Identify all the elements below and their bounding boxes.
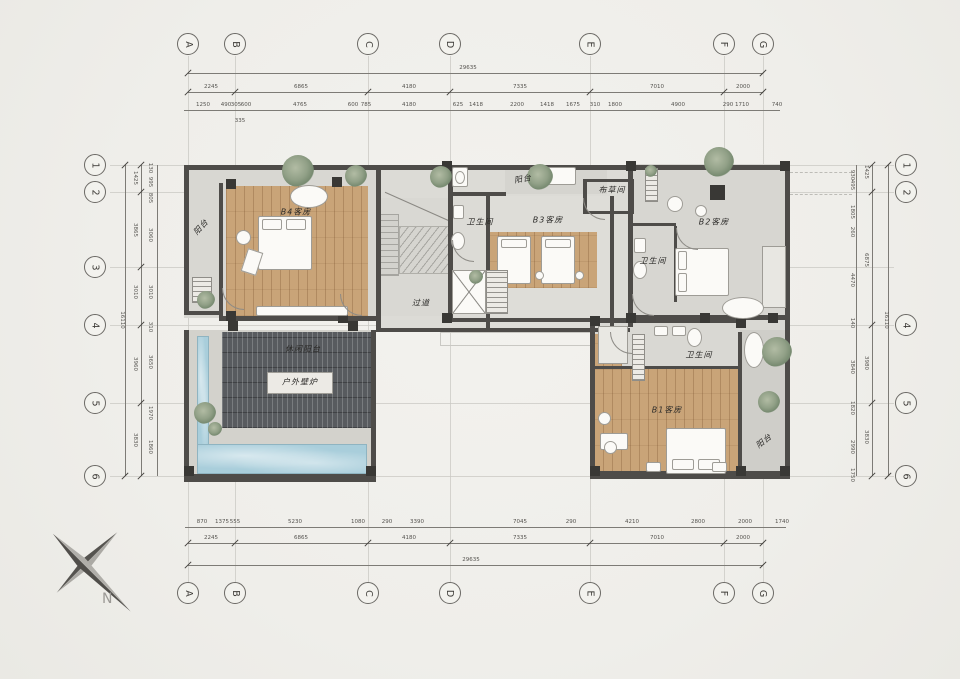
plant [762,337,792,367]
dim-detail-top: 305 [231,102,242,108]
compass-arm-long [49,530,135,616]
wall-segment [448,192,506,196]
grid-bubble-row-2-left: 2 [84,181,106,203]
grid-bubble-col-B-bottom: B [224,582,246,604]
dim-detail-top: 310 [590,102,601,108]
nightstand-b1 [712,462,727,472]
dim-detail-left: 995 [147,177,153,188]
grid-bubble-number: 5 [900,400,911,406]
grid-bubble-row-1-right: 1 [895,154,917,176]
dim-segment-bottom: 4180 [402,535,416,541]
dim-detail-left: 1970 [147,406,153,420]
dim-detail-left: 805 [147,193,153,204]
pillow [262,219,282,230]
dim-detail-left: 3060 [147,228,153,242]
grid-bubble-row-5-left: 5 [84,392,106,414]
grid-bubble-col-A-bottom: A [177,582,199,604]
grid-bubble-number: 4 [89,322,100,328]
room-label-corridor: 过道 [412,298,430,309]
dim-segment-bottom: 2000 [736,535,750,541]
grid-bubble-letter: F [719,590,730,595]
dim-segment-left: 1425 [132,171,138,185]
dim-segment-right: 3830 [863,430,869,444]
pillow [286,219,306,230]
dim-segment-bottom: 7010 [650,535,664,541]
armchair-b2 [695,205,707,217]
plant [282,155,314,187]
grid-bubble-col-E-top: E [579,33,601,55]
dim-detail-bottom: 1740 [775,519,789,525]
wall-segment [628,223,676,226]
dim-segment-left: 3960 [132,357,138,371]
dim-detail-top: 1675 [566,102,580,108]
pool-horizontal [197,444,367,474]
sink-bath-b3 [453,205,464,219]
grid-bubble-col-G-bottom: G [752,582,774,604]
dim-detail-top: 785 [361,102,372,108]
dim-segment-bottom: 6865 [294,535,308,541]
grid-bubble-row-4-left: 4 [84,314,106,336]
dim-segment-right: 6875 [863,253,869,267]
dim-overall-top: 29635 [459,65,477,71]
wall-segment [610,196,614,332]
window-bench-b2 [762,246,786,308]
structural-column [626,313,636,323]
room-label-leisure-terrace: 休闲阳台 [285,344,321,355]
structural-column [348,321,358,331]
dim-detail-left: 310 [147,322,153,333]
dim-detail-right: 495 [849,180,855,191]
grid-bubble-number: 5 [89,400,100,406]
dim-detail-top: 4180 [402,102,416,108]
wall-segment [738,332,742,473]
room-label-bedroom-b4: B4客房 [281,207,312,218]
dim-detail-right: 140 [849,318,855,329]
grid-bubble-row-4-right: 4 [895,314,917,336]
dim-detail-bottom: 870 [197,519,208,525]
structural-column [768,313,778,323]
dim-segment-top: 6865 [294,84,308,90]
armchair-b2 [667,196,683,212]
dim-segment-top: 7335 [513,84,527,90]
grid-bubble-col-F-bottom: F [713,582,735,604]
grid-bubble-letter: A [183,41,194,48]
pillow [545,239,571,248]
grid-bubble-col-F-top: F [713,33,735,55]
dimension-line [872,165,873,476]
wall-segment [594,366,740,369]
grid-bubble-number: 6 [900,473,911,479]
room-label-bedroom-b1: B1客房 [652,405,683,416]
wall-segment [376,165,381,332]
void-outline [440,332,592,346]
grid-bubble-number: 3 [89,264,100,270]
structural-column [710,185,725,200]
sink-b1 [672,326,686,336]
wall-segment [590,318,595,476]
dim-detail-top: 1418 [469,102,483,108]
dim-segment-bottom: 7335 [513,535,527,541]
dim-detail-top: 1418 [540,102,554,108]
dim-segment-left: 3830 [132,433,138,447]
toilet-b1 [687,328,702,347]
dim-detail-left: 1860 [147,440,153,454]
grid-bubble-number: 6 [89,473,100,479]
wall-segment [630,179,634,214]
grid-bubble-row-2-right: 2 [895,181,917,203]
wardrobe-b1 [632,334,645,381]
dim-detail-right: 2990 [849,440,855,454]
room-label-bedroom-b3: B3客房 [533,215,564,226]
dim-detail-right: 3840 [849,360,855,374]
wall-segment [184,330,189,480]
structural-column [736,318,746,328]
dim-detail-top: 290 [723,102,734,108]
projection-line [790,194,852,195]
dim-segment-left: 3865 [132,223,138,237]
bathtub-b4 [290,185,328,208]
grid-bubble-letter: B [230,590,241,597]
dim-detail-top: 1800 [608,102,622,108]
grid-bubble-row-5-right: 5 [895,392,917,414]
stair-flight-diagonal [399,226,449,274]
dim-detail-top: 490 [221,102,232,108]
dim-detail-top: 600 [241,102,252,108]
dim-detail-top: 1710 [735,102,749,108]
nightstand-b1 [646,462,661,472]
dim-detail-bottom: 1375 [215,519,229,525]
dim-overall-right: 16110 [883,311,889,329]
dim-detail-bottom: 2000 [738,519,752,525]
plant [345,165,367,187]
wall-segment [184,165,790,170]
structural-column [736,466,746,476]
dim-detail-top: 1250 [196,102,210,108]
grid-bubble-col-A-top: A [177,33,199,55]
sink-bath-b2 [634,238,646,253]
dim-segment-right: 3980 [863,356,869,370]
structural-column [700,313,710,323]
projection-line [790,172,852,173]
dimension-line [157,165,158,476]
grid-bubble-number: 1 [900,162,911,168]
structural-column [226,311,236,321]
dim-segment-top: 2000 [736,84,750,90]
service-shaft [486,270,508,314]
stool-b3 [535,271,544,280]
plant [194,402,216,424]
grid-bubble-col-G-top: G [752,33,774,55]
plant [208,422,222,436]
dim-segment-left: 3010 [132,285,138,299]
structural-column [226,179,236,189]
structural-column [366,466,376,476]
grid-bubble-col-B-top: B [224,33,246,55]
structural-column [590,316,600,326]
grid-bubble-letter: F [719,41,730,46]
dim-detail-bottom: 7045 [513,519,527,525]
dim-segment-bottom: 2245 [204,535,218,541]
dim-detail-bottom: 555 [230,519,241,525]
room-label-bath-b3: 卫生间 [467,217,494,228]
dimension-line [184,110,780,111]
north-compass: N [32,513,152,623]
grid-bubble-letter: D [444,40,455,47]
dim-detail-right: 260 [849,227,855,238]
tv-cabinet-b4 [256,306,348,316]
dim-detail-top: 625 [453,102,464,108]
plant [469,270,483,284]
grid-bubble-letter: B [230,41,241,48]
room-label-bath-b2: 卫生间 [640,256,667,267]
dim-segment-top: 4180 [402,84,416,90]
dim-overall-left: 16110 [119,311,125,329]
dim-overall-bottom: 29635 [462,557,480,563]
dim-detail-right: 1750 [849,468,855,482]
dimension-line [141,165,142,476]
wall-segment [219,183,223,320]
dim-segment-right: 1425 [863,165,869,179]
room-label-linen-room: 布草间 [599,185,626,196]
dim-detail-bottom: 3390 [410,519,424,525]
grid-line-col-A [188,56,189,582]
wall-segment [590,318,742,323]
dim-detail-top: 2200 [510,102,524,108]
grid-bubble-number: 2 [89,189,100,195]
sink-b1 [654,326,668,336]
grid-bubble-row-1-left: 1 [84,154,106,176]
wall-segment [184,165,189,315]
grid-bubble-number: 4 [900,322,911,328]
dim-extra-top: 335 [235,118,246,124]
dim-detail-bottom: 4210 [625,519,639,525]
grid-bubble-letter: C [362,590,373,597]
dim-detail-top: 600 [348,102,359,108]
planter-balcony-b1 [744,332,764,368]
dim-detail-bottom: 2800 [691,519,705,525]
dim-segment-top: 2245 [204,84,218,90]
grid-bubble-col-C-bottom: C [357,582,379,604]
plant [758,391,780,413]
chair-b4 [236,230,251,245]
grid-bubble-letter: G [758,40,769,47]
dim-detail-right: 4470 [849,273,855,287]
toilet-upper [455,171,465,184]
dimension-line [188,543,763,544]
stool-b3 [575,271,584,280]
plant [704,147,734,177]
grid-bubble-letter: G [758,589,769,596]
structural-column [626,161,636,171]
dim-detail-right: 1820 [849,401,855,415]
dim-detail-left: 130 [147,163,153,174]
grid-bubble-letter: D [444,589,455,596]
room-label-bedroom-b2: B2客房 [699,217,730,228]
dimension-line [188,73,763,74]
plant [430,166,452,188]
dim-detail-bottom: 5230 [288,519,302,525]
grid-bubble-col-C-top: C [357,33,379,55]
bathtub-b2 [722,297,764,319]
chair-b1 [604,441,617,454]
structural-column [780,466,790,476]
grid-bubble-col-D-bottom: D [439,582,461,604]
wall-segment [448,318,608,322]
pillow [678,273,687,292]
compass-north-label: N [102,591,112,607]
dim-detail-bottom: 1080 [351,519,365,525]
dimension-line [188,92,763,93]
pillow [672,459,694,470]
structural-column [780,161,790,171]
pillow [501,239,527,248]
dimension-line [125,165,126,476]
structural-column [228,321,238,331]
grid-bubble-col-D-top: D [439,33,461,55]
room-label-bath-b1: 卫生间 [686,350,713,361]
dim-detail-left: 3650 [147,355,153,369]
grid-bubble-row-6-left: 6 [84,465,106,487]
dim-detail-right: 1805 [849,205,855,219]
dim-detail-right: 930 [849,170,855,181]
grid-bubble-number: 2 [900,189,911,195]
wall-segment [583,179,633,182]
dim-detail-top: 4765 [293,102,307,108]
dim-segment-top: 7010 [650,84,664,90]
wall-segment [184,311,222,315]
structural-column [442,313,452,323]
plant [645,165,657,177]
dim-detail-bottom: 290 [566,519,577,525]
wall-segment [371,330,376,480]
structural-column [590,466,600,476]
grid-bubble-letter: A [183,590,194,597]
grid-bubble-row-3-left: 3 [84,256,106,278]
plant [197,291,215,309]
grid-bubble-number: 1 [89,162,100,168]
grid-bubble-letter: C [362,41,373,48]
dimension-line [185,527,786,528]
grid-bubble-col-E-bottom: E [579,582,601,604]
dim-detail-top: 740 [772,102,783,108]
dimension-line [188,565,763,566]
room-label-outdoor-fireplace: 户外壁炉 [282,377,318,388]
dimension-line [856,165,857,476]
grid-bubble-letter: E [584,41,595,47]
floor-plan-sheet: 阳台B4客房卫生间B3客房阳台布草间卫生间B2客房过道休闲阳台户外壁炉卫生间B1… [0,0,960,679]
stool-b1 [598,412,611,425]
pillow [678,251,687,270]
dim-detail-top: 4900 [671,102,685,108]
structural-column [184,466,194,476]
grid-bubble-letter: E [584,590,595,596]
stair-flight-left [379,214,399,276]
grid-bubble-row-6-right: 6 [895,465,917,487]
dim-detail-bottom: 290 [382,519,393,525]
dim-detail-left: 3010 [147,285,153,299]
structural-column [332,177,342,187]
wall-segment [184,474,376,482]
